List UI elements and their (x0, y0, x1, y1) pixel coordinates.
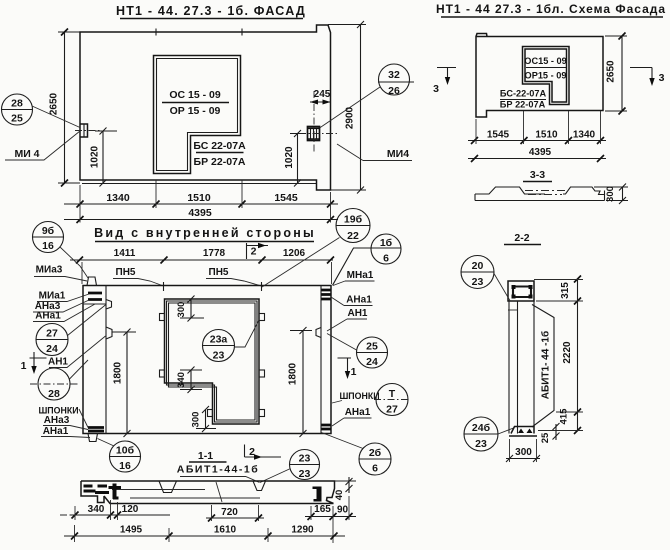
svg-text:Вид с внутренней стороны: Вид с внутренней стороны (94, 226, 316, 240)
svg-text:10б: 10б (116, 445, 135, 457)
svg-text:ПН5: ПН5 (209, 267, 229, 278)
svg-text:23: 23 (213, 350, 225, 362)
svg-text:4395: 4395 (188, 207, 212, 219)
svg-text:23а: 23а (210, 334, 228, 346)
svg-text:АБИТ1- 44 -1б: АБИТ1- 44 -1б (540, 331, 552, 399)
svg-text:ПН5: ПН5 (116, 267, 136, 278)
svg-text:БР 22-07А: БР 22-07А (500, 100, 546, 110)
svg-text:АБИТ1-44-1б: АБИТ1-44-1б (177, 464, 259, 476)
svg-text:3-3: 3-3 (530, 169, 545, 181)
svg-text:1800: 1800 (113, 361, 124, 384)
svg-text:НТ1 - 44 27.3 - 1бл. Схема Фа: НТ1 - 44 27.3 - 1бл. Схема Фасада (436, 2, 666, 16)
svg-text:МИа3: МИа3 (36, 265, 63, 276)
svg-text:2650: 2650 (606, 60, 617, 83)
svg-text:1б: 1б (380, 237, 393, 249)
svg-text:БР 22-07А: БР 22-07А (194, 156, 246, 168)
svg-text:МИ4: МИ4 (387, 148, 409, 160)
svg-text:9б: 9б (42, 225, 55, 237)
svg-text:1545: 1545 (487, 130, 510, 141)
svg-text:2: 2 (251, 246, 257, 258)
svg-text:3: 3 (433, 83, 439, 95)
svg-text:32: 32 (388, 69, 400, 81)
svg-text:1020: 1020 (90, 145, 101, 168)
svg-text:1340: 1340 (106, 192, 130, 204)
svg-text:16: 16 (119, 460, 131, 472)
svg-text:27: 27 (386, 404, 398, 416)
svg-text:28: 28 (48, 388, 60, 400)
svg-text:ОС15 - 09: ОС15 - 09 (524, 56, 566, 66)
svg-text:БС-22-07А: БС-22-07А (500, 89, 547, 99)
svg-text:300: 300 (515, 447, 532, 458)
svg-text:27: 27 (46, 328, 58, 340)
svg-text:1778: 1778 (203, 248, 226, 259)
svg-text:245: 245 (314, 89, 331, 100)
svg-text:4395: 4395 (529, 147, 552, 158)
svg-text:БС 22-07А: БС 22-07А (193, 140, 246, 152)
svg-text:1800: 1800 (288, 362, 299, 385)
svg-text:АН1: АН1 (48, 357, 68, 368)
svg-text:1020: 1020 (284, 146, 295, 169)
svg-text:24: 24 (46, 343, 58, 355)
svg-text:АНа3: АНа3 (44, 415, 70, 426)
svg-text:300: 300 (176, 302, 187, 318)
svg-text:28: 28 (11, 98, 23, 110)
svg-text:2650: 2650 (49, 92, 60, 115)
svg-text:МИ 4: МИ 4 (14, 148, 39, 160)
svg-text:2б: 2б (369, 447, 382, 459)
svg-text:1: 1 (351, 366, 357, 378)
svg-text:340: 340 (88, 504, 105, 515)
svg-text:2-2: 2-2 (514, 232, 529, 244)
svg-text:40: 40 (334, 490, 345, 501)
svg-text:ШПОНКИ: ШПОНКИ (38, 406, 78, 416)
svg-text:415: 415 (559, 408, 570, 425)
svg-text:АНа1: АНа1 (345, 407, 371, 418)
svg-text:23: 23 (475, 438, 487, 450)
svg-text:20: 20 (472, 260, 484, 272)
svg-text:24б: 24б (472, 422, 491, 434)
svg-text:АН1: АН1 (347, 308, 367, 319)
svg-text:25: 25 (11, 113, 23, 125)
svg-text:НТ1 - 44. 27.3 - 1б. ФАСАД: НТ1 - 44. 27.3 - 1б. ФАСАД (116, 4, 306, 18)
svg-text:300: 300 (605, 186, 616, 202)
svg-text:1206: 1206 (283, 248, 306, 259)
svg-text:24: 24 (366, 356, 378, 368)
svg-text:1510: 1510 (187, 192, 211, 204)
svg-text:1495: 1495 (120, 525, 143, 536)
svg-text:3: 3 (659, 72, 665, 84)
svg-text:19б: 19б (344, 214, 363, 226)
svg-text:26: 26 (388, 85, 400, 97)
svg-text:23: 23 (472, 276, 484, 288)
svg-text:Т: Т (389, 388, 396, 400)
svg-text:340: 340 (176, 372, 187, 388)
svg-text:16: 16 (42, 240, 54, 252)
svg-text:2: 2 (249, 446, 255, 458)
svg-text:6: 6 (383, 253, 389, 265)
svg-text:ОС 15 - 09: ОС 15 - 09 (169, 89, 221, 101)
svg-text:25: 25 (540, 432, 551, 443)
svg-text:2220: 2220 (562, 341, 573, 364)
svg-text:1545: 1545 (274, 192, 298, 204)
svg-text:22: 22 (347, 230, 359, 242)
svg-text:1340: 1340 (573, 130, 596, 141)
svg-text:300: 300 (191, 412, 202, 428)
svg-text:1: 1 (21, 360, 27, 372)
svg-text:6: 6 (372, 463, 378, 475)
svg-text:1610: 1610 (214, 525, 237, 536)
svg-text:ШПОНКИ: ШПОНКИ (339, 391, 379, 401)
svg-text:90: 90 (337, 505, 349, 516)
svg-text:ОР 15 - 09: ОР 15 - 09 (170, 105, 221, 117)
svg-text:АНа1: АНа1 (346, 295, 372, 306)
svg-text:25: 25 (366, 341, 378, 353)
svg-text:120: 120 (122, 504, 139, 515)
svg-text:1510: 1510 (535, 130, 558, 141)
svg-text:ОР15 - 09: ОР15 - 09 (525, 71, 567, 81)
svg-text:23: 23 (299, 453, 311, 465)
svg-text:АНа1: АНа1 (43, 426, 69, 437)
svg-text:АНа1: АНа1 (35, 311, 61, 322)
svg-text:165: 165 (314, 504, 331, 515)
svg-text:1290: 1290 (291, 525, 314, 536)
svg-text:315: 315 (560, 282, 571, 299)
svg-text:23: 23 (299, 468, 311, 480)
svg-text:1411: 1411 (114, 248, 136, 259)
svg-text:1-1: 1-1 (198, 450, 213, 462)
svg-text:МНа1: МНа1 (347, 270, 374, 281)
svg-text:720: 720 (221, 507, 238, 518)
svg-text:МИа1: МИа1 (39, 291, 66, 302)
